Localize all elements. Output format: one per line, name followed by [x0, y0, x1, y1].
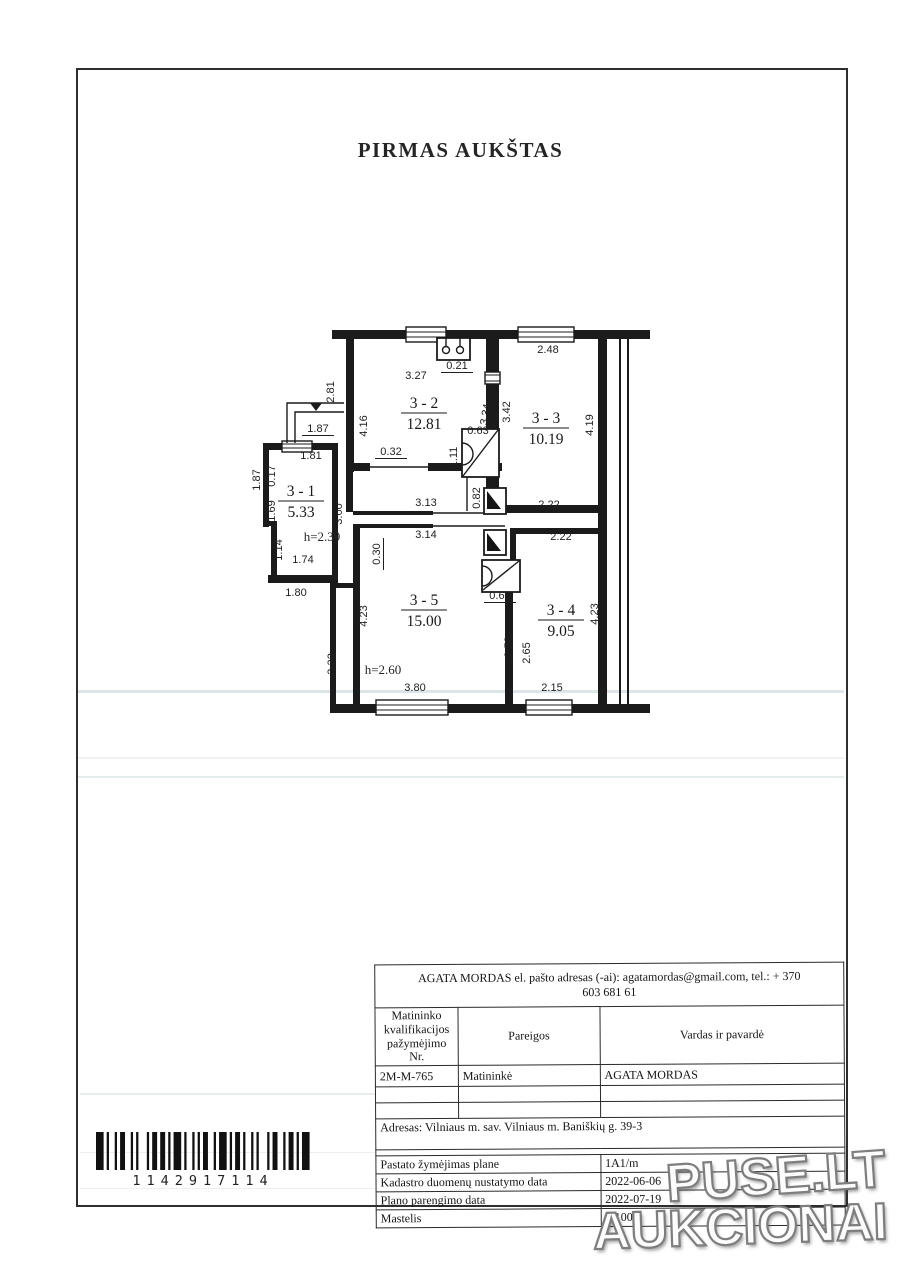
- svg-text:1.87: 1.87: [307, 423, 328, 435]
- svg-text:0.82: 0.82: [471, 487, 483, 508]
- svg-text:2.22: 2.22: [550, 531, 571, 543]
- row-label-building-marking: Pastato žymėjimas plane: [376, 1155, 601, 1174]
- empty-cell: [600, 1100, 844, 1117]
- window-symbol: [376, 700, 448, 715]
- svg-text:3 - 2: 3 - 2: [410, 395, 438, 412]
- svg-text:2.48: 2.48: [537, 344, 558, 356]
- dimension-label: 3.80: [404, 682, 425, 694]
- room-label: 3 - 310.19: [523, 410, 569, 448]
- svg-text:3 - 3: 3 - 3: [532, 410, 561, 427]
- dimension-label: 2.58: [503, 636, 515, 657]
- flue-icon: [484, 530, 506, 555]
- svg-text:2.58: 2.58: [503, 636, 515, 657]
- svg-text:0.17: 0.17: [266, 465, 278, 486]
- col-header-position: Pareigos: [458, 1007, 600, 1066]
- dimension-label: 0.32: [375, 446, 407, 459]
- dimension-label: 3.14: [415, 529, 436, 541]
- col-header-name: Vardas ir pavardė: [600, 1005, 845, 1065]
- entrance-arrow-icon: [310, 403, 322, 411]
- dimension-label: 3.13: [415, 497, 436, 509]
- svg-text:h=2.60: h=2.60: [365, 662, 402, 677]
- svg-text:2.15: 2.15: [541, 682, 562, 694]
- svg-text:4.23: 4.23: [358, 605, 370, 626]
- svg-text:1.11: 1.11: [448, 447, 460, 468]
- contact-line2: 603 681 61: [379, 984, 839, 1002]
- barcode: 1142917114: [96, 1132, 314, 1198]
- svg-text:5.33: 5.33: [287, 504, 314, 521]
- svg-text:1.80: 1.80: [285, 587, 306, 599]
- svg-text:3 - 1: 3 - 1: [287, 483, 315, 500]
- svg-text:1.81: 1.81: [300, 450, 321, 462]
- svg-text:3.32: 3.32: [326, 653, 338, 674]
- dimension-label: 0.63: [467, 425, 488, 437]
- flue-icon: [484, 488, 506, 514]
- col-header-cert-no: Matininko kvalifikacijos pažymėjimo Nr.: [375, 1007, 458, 1066]
- svg-text:0.30: 0.30: [371, 543, 383, 564]
- svg-text:4.23: 4.23: [589, 603, 601, 624]
- dimension-label: 4.19: [584, 414, 596, 435]
- dimension-label: 3.42: [501, 401, 513, 422]
- svg-text:4.16: 4.16: [358, 415, 370, 436]
- svg-text:2.81: 2.81: [325, 381, 337, 402]
- dimension-label: 0.17: [266, 465, 278, 486]
- empty-cell: [375, 1087, 458, 1104]
- dimension-label: 2.15: [541, 682, 562, 694]
- dimension-label: 1.87: [302, 423, 334, 436]
- svg-text:2.22: 2.22: [538, 499, 559, 511]
- floor-plan: 2.811.871.811.870.171.691.141.741.803.00…: [0, 0, 912, 780]
- dimension-label: 1.81: [300, 450, 321, 462]
- empty-cell: [458, 1102, 600, 1119]
- window-symbol: [518, 327, 574, 342]
- svg-text:3 - 4: 3 - 4: [547, 602, 576, 619]
- dimension-label: 4.16: [358, 415, 370, 436]
- svg-text:0.63: 0.63: [467, 425, 488, 437]
- svg-text:15.00: 15.00: [407, 613, 442, 630]
- surveyor-position: Matininkė: [458, 1065, 600, 1087]
- dimension-label: 0.82: [471, 487, 483, 508]
- empty-cell: [376, 1103, 459, 1120]
- dimension-label: 4.23: [589, 603, 601, 624]
- dimension-label: 2.22: [538, 499, 559, 511]
- stove-burners-icon: [437, 338, 470, 360]
- svg-text:3.42: 3.42: [501, 401, 513, 422]
- room-label: 3 - 212.81: [401, 395, 447, 433]
- dimension-label: 3.27: [405, 370, 426, 382]
- svg-text:0.32: 0.32: [380, 446, 401, 458]
- window-symbols: [376, 327, 574, 715]
- dimension-label: 2.22: [550, 531, 571, 543]
- svg-text:3.27: 3.27: [405, 370, 426, 382]
- svg-text:0.21: 0.21: [446, 360, 467, 372]
- dimension-label: 2.48: [537, 344, 558, 356]
- empty-cell: [458, 1086, 600, 1103]
- watermark-line2: AUKCIONAI: [592, 1192, 889, 1262]
- contact-line1: AGATA MORDAS el. pašto adresas (-ai): ag…: [379, 969, 839, 987]
- svg-text:3.00: 3.00: [333, 503, 345, 524]
- contact-cell: AGATA MORDAS el. pašto adresas (-ai): ag…: [375, 962, 844, 1008]
- svg-text:3 - 5: 3 - 5: [410, 592, 439, 609]
- row-label-scale: Mastelis: [376, 1209, 601, 1228]
- dimension-label: 1.14: [273, 539, 285, 560]
- surveyor-name: AGATA MORDAS: [600, 1063, 844, 1085]
- dimension-label: 1.80: [285, 587, 306, 599]
- svg-text:4.19: 4.19: [584, 414, 596, 435]
- empty-cell: [600, 1084, 844, 1101]
- room-label: 3 - 49.05: [538, 602, 584, 640]
- svg-text:1.14: 1.14: [273, 539, 285, 560]
- surveyor-cert-no: 2M-M-765: [375, 1066, 458, 1088]
- dimension-label: 4.23: [358, 605, 370, 626]
- scanned-page: PIRMAS AUKŠTAS: [0, 0, 912, 1280]
- barcode-bars: [96, 1132, 310, 1172]
- dimension-label: 3.32: [326, 653, 338, 674]
- plan-labels: 2.811.871.811.870.171.691.141.741.803.00…: [251, 344, 601, 694]
- dimension-label: 1.74: [292, 554, 313, 566]
- svg-text:9.05: 9.05: [547, 623, 574, 640]
- barcode-digits: 1142917114: [96, 1173, 310, 1189]
- dimension-label: 1.69: [266, 500, 278, 521]
- row-label-cadastre-date: Kadastro duomenų nustatymo data: [376, 1173, 601, 1192]
- svg-text:3.80: 3.80: [404, 682, 425, 694]
- svg-text:3.13: 3.13: [415, 497, 436, 509]
- stove-icon: [482, 560, 520, 592]
- dimension-label: 1.11: [448, 447, 460, 468]
- svg-text:10.19: 10.19: [529, 431, 564, 448]
- svg-text:2.65: 2.65: [521, 642, 533, 663]
- row-label-plan-date: Plano parengimo data: [376, 1191, 601, 1210]
- svg-text:12.81: 12.81: [407, 416, 442, 433]
- dimension-label: 2.81: [325, 381, 337, 402]
- room-label: 3 - 515.00h=2.60: [365, 592, 447, 677]
- dimension-label: 0.30: [371, 538, 384, 570]
- room-label: 3 - 15.33h=2.39: [278, 483, 340, 544]
- walls: [263, 330, 650, 713]
- svg-text:0.65: 0.65: [489, 590, 510, 602]
- dimension-label: 0.21: [441, 360, 473, 373]
- svg-text:3.14: 3.14: [415, 529, 436, 541]
- dimension-label: 3.00: [333, 503, 345, 524]
- window-symbol: [526, 700, 572, 715]
- svg-text:1.87: 1.87: [251, 469, 263, 490]
- svg-text:h=2.39: h=2.39: [304, 529, 341, 544]
- dimension-label: 2.65: [521, 642, 533, 663]
- svg-text:1.74: 1.74: [292, 554, 313, 566]
- svg-text:1.69: 1.69: [266, 500, 278, 521]
- dimension-label: 1.87: [251, 469, 263, 490]
